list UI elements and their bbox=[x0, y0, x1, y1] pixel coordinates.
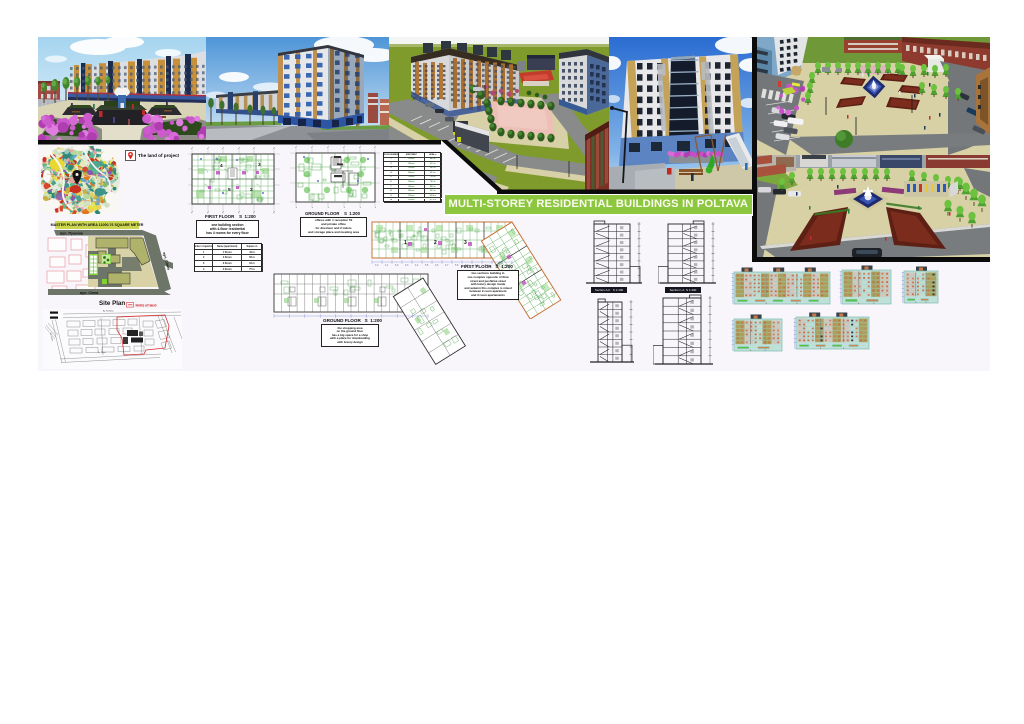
svg-text:3: 3 bbox=[464, 240, 467, 246]
svg-text:By. Sinna: By. Sinna bbox=[98, 352, 106, 354]
svg-text:2: 2 bbox=[434, 240, 437, 246]
svg-text:вул. Пушкіна: вул. Пушкіна bbox=[60, 231, 84, 235]
svg-text:5: 5 bbox=[228, 187, 231, 193]
svg-text:2: 2 bbox=[250, 187, 253, 193]
svg-text:By. Pushkina: By. Pushkina bbox=[103, 311, 113, 313]
svg-text:3: 3 bbox=[258, 162, 261, 168]
svg-text:4: 4 bbox=[220, 163, 223, 169]
svg-text:вул. Сінна: вул. Сінна bbox=[80, 291, 99, 295]
svg-text:1: 1 bbox=[404, 240, 407, 246]
svg-text:limits of land: limits of land bbox=[136, 304, 157, 308]
